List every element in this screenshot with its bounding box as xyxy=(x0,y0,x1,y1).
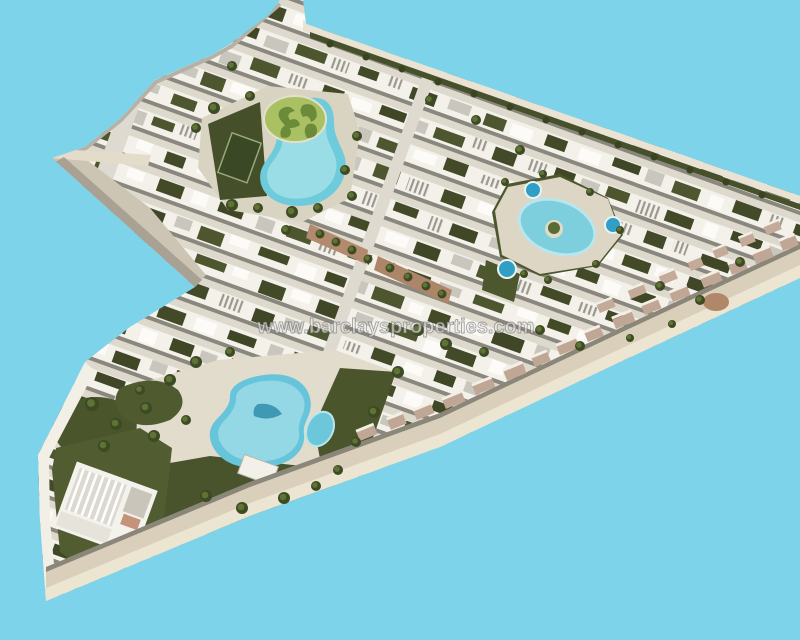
svg-text:www.barclaysproperties.com: www.barclaysproperties.com xyxy=(256,316,534,338)
